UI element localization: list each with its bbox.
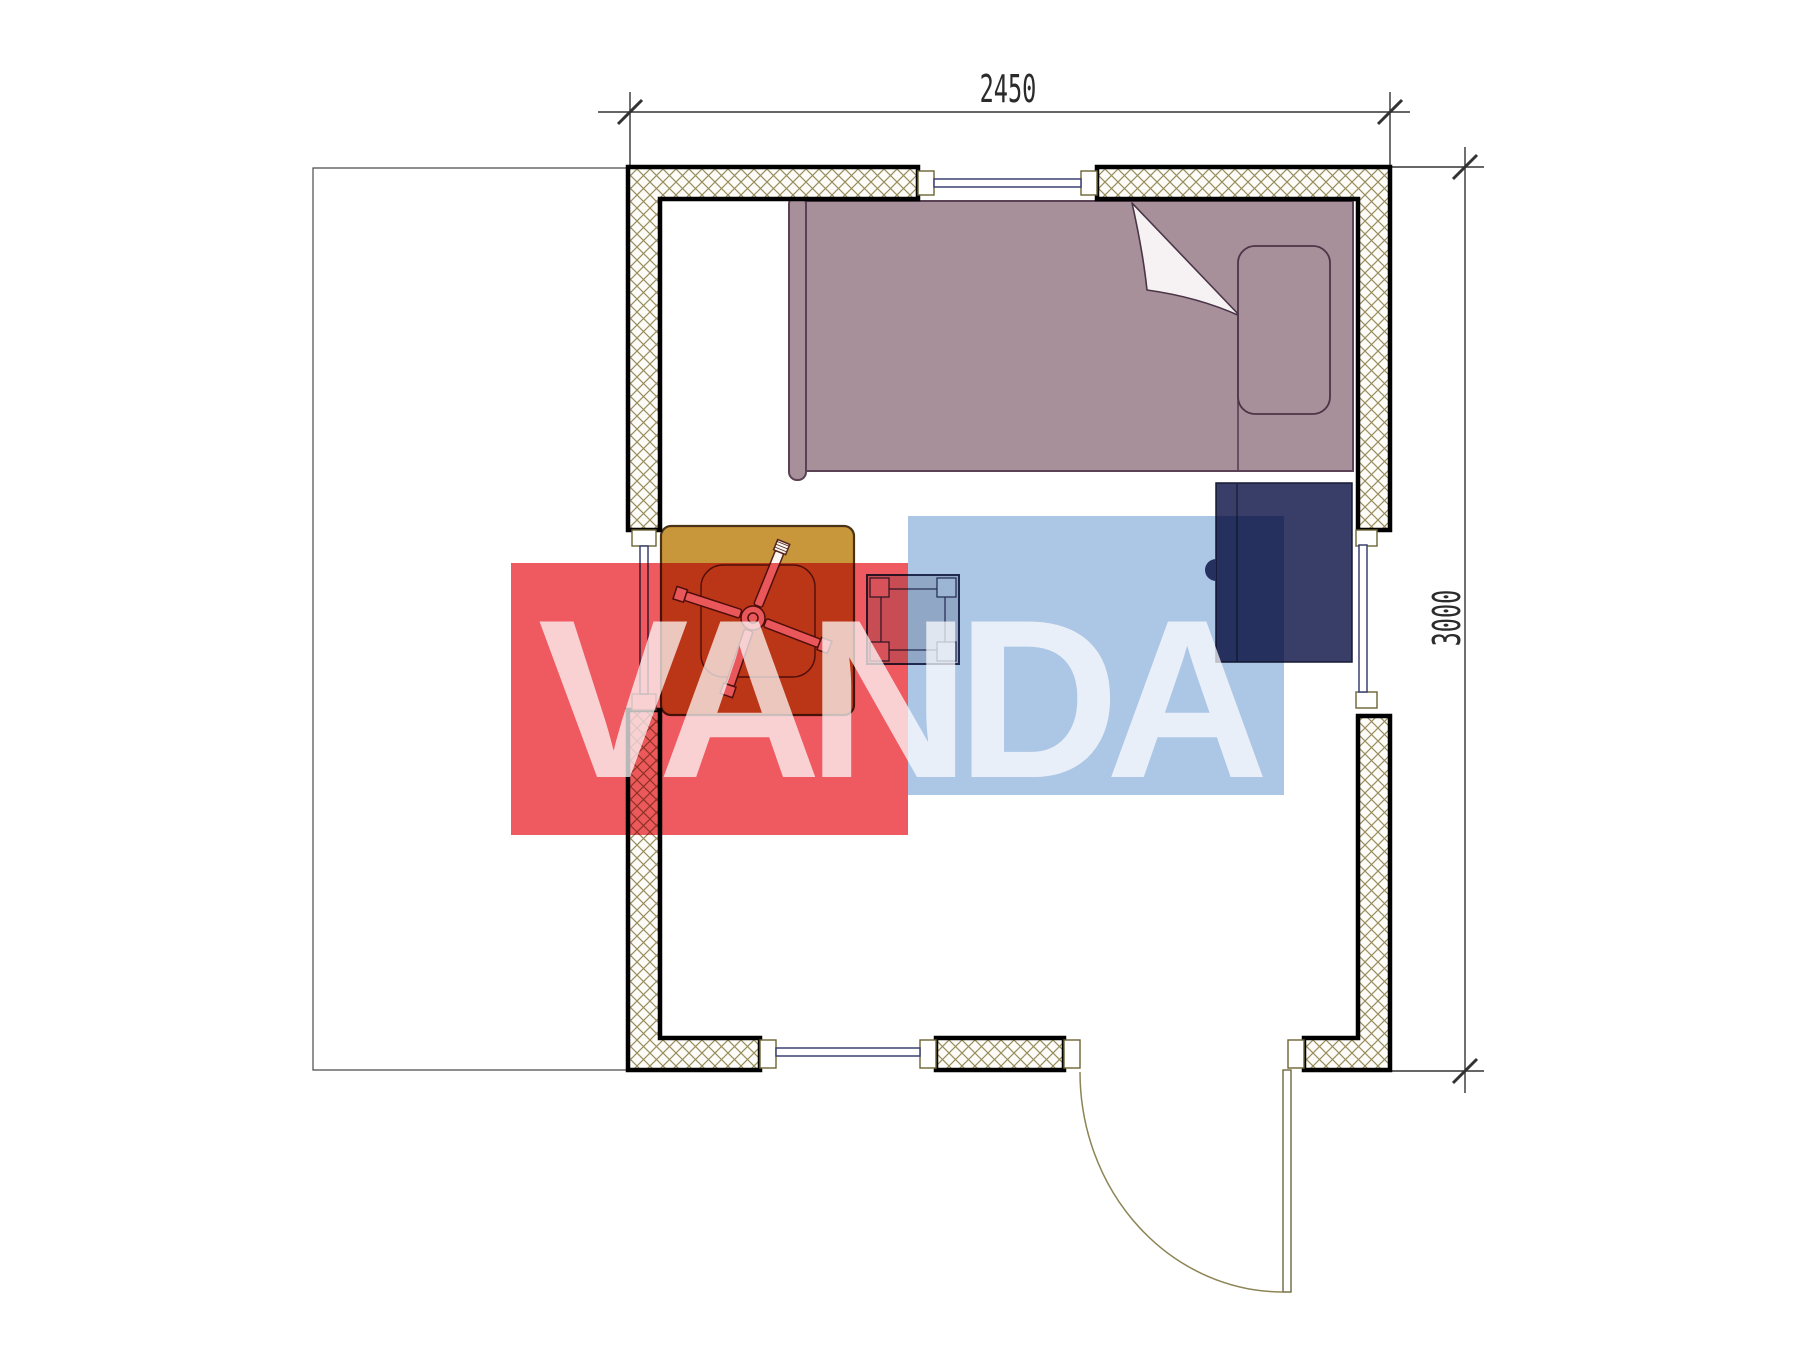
pillow bbox=[1238, 246, 1330, 414]
window-right bbox=[1359, 545, 1367, 692]
watermark-text: VANDA bbox=[538, 586, 1255, 812]
wall-bottom-right bbox=[1304, 716, 1390, 1070]
wall-bottom-middle bbox=[936, 1038, 1064, 1070]
height-dimension-label: 3000 bbox=[1428, 575, 1468, 662]
door-swing-arc bbox=[1080, 1072, 1283, 1292]
door-leaf bbox=[1283, 1070, 1291, 1292]
floor-plan-canvas: VANDA 2450 3000 bbox=[0, 0, 1800, 1350]
width-dimension-label: 2450 bbox=[965, 70, 1052, 108]
entry-door bbox=[1080, 1070, 1291, 1292]
window-bottom bbox=[776, 1048, 920, 1056]
bed-footboard bbox=[789, 196, 806, 480]
bed bbox=[789, 196, 1353, 480]
window-top bbox=[934, 179, 1081, 187]
